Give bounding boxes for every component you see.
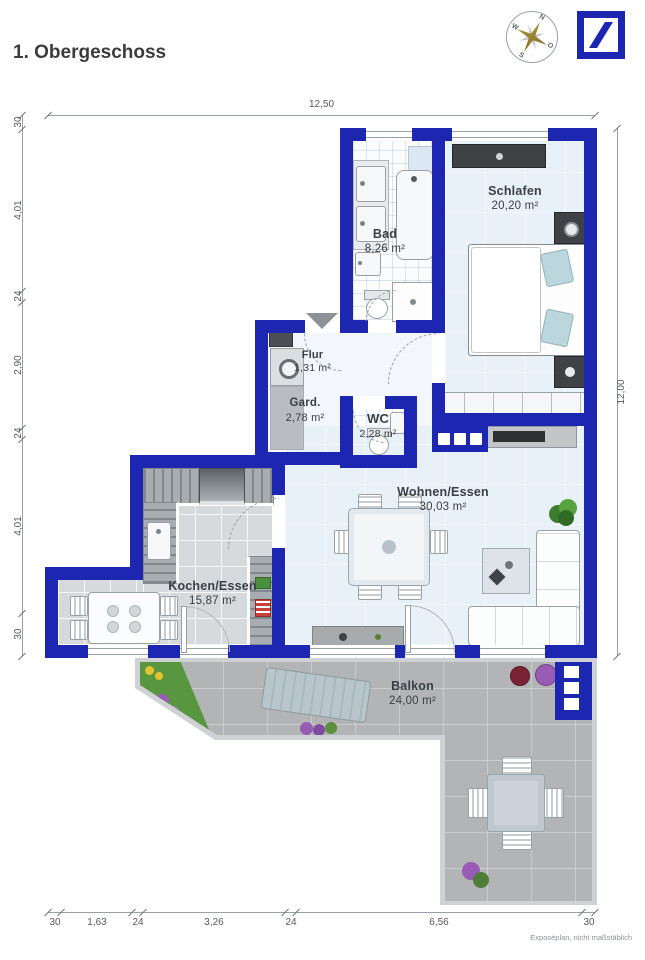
table-setting <box>107 605 119 617</box>
dimension-label-bottom: 30 <box>33 917 77 928</box>
room-area: 8,26 m² <box>365 242 405 257</box>
wall-schlafen-bottom <box>432 413 584 426</box>
green-plant <box>325 722 337 734</box>
wall-window <box>564 682 579 694</box>
wall-bad-schlafen <box>432 141 445 333</box>
room-label-gard: Gard. 2,78 m² <box>266 396 344 425</box>
dimension-label-bottom: 6,56 <box>417 917 461 928</box>
deutsche-bank-logo <box>577 11 625 59</box>
window-kitchen-nook <box>88 645 148 658</box>
room-name: Kochen/Essen <box>168 578 257 594</box>
wall-schlafen-door-stub <box>432 383 445 413</box>
illustrator-watermark: IllustrationCommoGrafik <box>591 662 596 719</box>
compass-east-label: O <box>546 42 554 51</box>
dining-table <box>348 508 430 586</box>
lamp <box>565 367 575 377</box>
wall-bad-bottom-right <box>396 320 432 333</box>
coffee-table <box>482 548 530 594</box>
niche-window <box>438 433 450 445</box>
stove-hood <box>199 468 245 505</box>
room-name: Bad <box>373 226 397 242</box>
dimension-label-top: 12,50 <box>48 99 595 110</box>
faucet <box>358 261 362 265</box>
table-setting <box>129 605 141 617</box>
room-area: 30,03 m² <box>420 500 467 515</box>
room-area: 24,00 m² <box>389 694 436 709</box>
room-label-balkon: Balkon 24,00 m² <box>355 678 470 709</box>
table-setting <box>107 621 119 633</box>
room-label-wohnen: Wohnen/Essen 30,03 m² <box>378 484 508 515</box>
dimension-label-left: 30 <box>10 104 26 140</box>
wall-right <box>584 141 597 658</box>
room-label-wc: WC 2,28 m² <box>348 411 408 442</box>
pillow <box>540 308 574 347</box>
footer-note: Exposéplan, nicht maßstäblich <box>400 933 632 942</box>
shower <box>392 282 434 322</box>
room-name: Schlafen <box>488 183 542 199</box>
floorplan-page: 1. Obergeschoss N O S W <box>0 0 645 960</box>
shower-drain <box>410 299 416 305</box>
dining-chair <box>430 530 448 554</box>
electrical-panel <box>269 331 293 347</box>
dimension-label-left: 24 <box>10 415 26 451</box>
kitchen-chair <box>160 620 178 640</box>
faucet <box>411 176 417 182</box>
room-label-flur: Flur 1,31 m² <box>275 348 350 376</box>
dimension-label-bottom: 30 <box>567 917 611 928</box>
wall-kitchen-left <box>130 468 143 567</box>
table-setting <box>129 621 141 633</box>
dresser-knob <box>496 153 503 160</box>
yellow-flowers <box>145 666 154 675</box>
wall-window <box>564 698 579 710</box>
room-area: 15,87 m² <box>189 594 236 609</box>
compass-rose-icon: N O S W <box>506 11 558 63</box>
room-name: Balkon <box>391 678 434 694</box>
purple-flowers <box>300 722 313 735</box>
window-wohnen <box>310 645 395 658</box>
page-title: 1. Obergeschoss <box>13 42 166 64</box>
door-leaf-wohnen-balcony <box>405 605 411 653</box>
dimension-label-left: 24 <box>10 278 26 314</box>
table-decor <box>505 561 513 569</box>
wall-flur-top <box>255 320 305 333</box>
yellow-flowers <box>155 672 163 680</box>
sink <box>356 166 386 202</box>
dimension-label-left: 4,01 <box>10 508 26 544</box>
table-decor <box>382 540 396 554</box>
wardrobe <box>435 392 585 415</box>
dimension-label-bottom: 24 <box>116 917 160 928</box>
faucet <box>360 181 365 186</box>
wall-kitchen-top <box>130 455 285 468</box>
wall-bad-bottom-left <box>340 320 368 333</box>
wall-step <box>45 567 143 580</box>
niche-window <box>454 433 466 445</box>
window-bad <box>366 128 412 141</box>
kitchen-sink <box>147 522 171 560</box>
plant <box>549 499 579 529</box>
window-schlafen <box>452 128 548 141</box>
sofa-horizontal-arm <box>468 606 580 646</box>
room-name: WC <box>367 411 389 428</box>
kitchen-chair <box>70 620 88 640</box>
dimension-label-bottom: 24 <box>269 917 313 928</box>
door-leaf-kitchen-balcony <box>181 606 187 653</box>
red-flower-pot <box>510 666 530 686</box>
balcony-side-wall: IllustrationCommoGrafik <box>555 658 597 720</box>
compass-south-label: S <box>518 51 525 59</box>
dimension-label-left: 30 <box>10 616 26 652</box>
wall-niche <box>432 426 488 452</box>
wall-window <box>564 666 579 678</box>
double-bed <box>468 244 586 356</box>
dimension-label-left: 2,90 <box>10 347 26 383</box>
sideboard-decor <box>375 634 381 640</box>
pillow <box>540 248 574 287</box>
purple-flowers <box>313 724 325 736</box>
niche-window <box>470 433 482 445</box>
purple-flowers <box>167 706 179 718</box>
faucet <box>156 529 161 534</box>
sideboard-decor <box>339 633 347 641</box>
window-wohnen-east <box>480 645 545 658</box>
entrance-arrow-icon <box>306 313 338 329</box>
room-area: 20,20 m² <box>492 199 539 214</box>
nightstand <box>554 356 586 388</box>
balcony-table <box>487 774 545 832</box>
dimension-line-top <box>48 115 595 116</box>
room-area: 2,28 m² <box>360 428 397 442</box>
dimension-label-bottom: 3,26 <box>192 917 236 928</box>
room-name: Wohnen/Essen <box>397 484 489 500</box>
purple-flower-pot <box>535 664 557 686</box>
green-plant <box>473 872 489 888</box>
room-name: Gard. <box>289 396 320 411</box>
duvet <box>471 247 541 353</box>
compass-rotor: N O S W <box>498 3 566 71</box>
dimension-label-bottom: 1,63 <box>75 917 119 928</box>
compass-west-label: W <box>510 23 519 32</box>
room-name: Flur <box>302 348 324 362</box>
plant-leaf <box>558 510 574 526</box>
sideboard <box>312 626 404 647</box>
compass-needle <box>509 14 555 60</box>
room-label-schlafen: Schlafen 20,20 m² <box>455 183 575 214</box>
lamp <box>564 222 579 237</box>
tv <box>493 431 545 442</box>
dimension-label-left: 4,01 <box>10 192 26 228</box>
compass-north-label: N <box>538 14 546 23</box>
dimension-label-right: 12,00 <box>613 372 629 412</box>
room-label-kochen: Kochen/Essen 15,87 m² <box>150 578 275 609</box>
wall-kitchen-divider-upper <box>272 468 285 495</box>
kitchen-chair <box>70 596 88 616</box>
room-label-bad: Bad 8,26 m² <box>345 226 425 257</box>
flower-bed <box>137 660 215 744</box>
room-area: 2,78 m² <box>286 411 325 425</box>
wall-wc-bottom <box>340 455 417 468</box>
balcony-chair <box>542 788 564 818</box>
room-area: 1,31 m² <box>294 362 331 376</box>
dresser <box>452 144 546 168</box>
nightstand <box>554 212 586 244</box>
table-decor <box>489 569 506 586</box>
purple-flowers <box>155 694 169 708</box>
